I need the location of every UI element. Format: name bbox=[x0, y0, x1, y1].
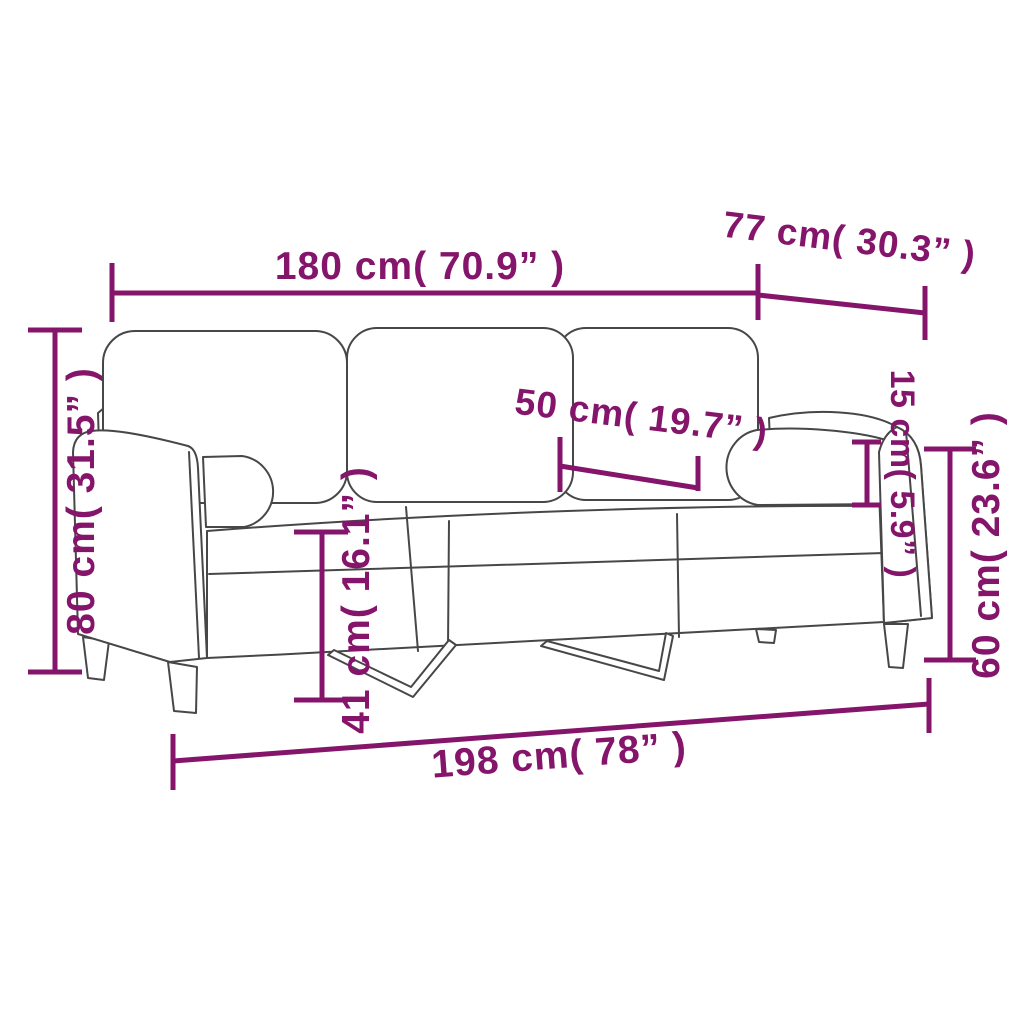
mid-left-leg bbox=[168, 662, 197, 713]
sofa-line-drawing bbox=[73, 328, 932, 713]
dimension-back-height: 80 cm( 31.5” ) bbox=[28, 330, 103, 672]
dimension-inner-width-label: 180 cm( 70.9” ) bbox=[275, 245, 565, 288]
bolster-pillow-left bbox=[203, 456, 273, 527]
dimension-arm-height-label: 60 cm( 23.6” ) bbox=[965, 411, 1008, 679]
seat-gap-left-2 bbox=[448, 521, 449, 648]
dimension-arm-height: 60 cm( 23.6” ) bbox=[924, 411, 1008, 679]
dimension-seat-height-label: 41 cm( 16.1” ) bbox=[335, 466, 378, 734]
product-dimension-diagram: 180 cm( 70.9” ) 77 cm( 30.3” ) 80 cm( 31… bbox=[0, 0, 1024, 1024]
sofa-seat-base bbox=[207, 506, 884, 658]
front-left-leg bbox=[83, 637, 109, 680]
dimension-total-width-label: 198 cm( 78” ) bbox=[430, 725, 688, 787]
dimension-inner-width: 180 cm( 70.9” ) bbox=[112, 245, 758, 322]
dimension-pillow-height-label: 15 cm( 5.9” ) bbox=[883, 370, 921, 579]
dimension-back-height-label: 80 cm( 31.5” ) bbox=[60, 367, 103, 635]
back-right-leg bbox=[756, 629, 776, 643]
sofa-dimension-diagram-svg: 180 cm( 70.9” ) 77 cm( 30.3” ) 80 cm( 31… bbox=[0, 0, 1024, 1024]
dimension-total-width: 198 cm( 78” ) bbox=[173, 678, 929, 790]
front-right-leg bbox=[884, 624, 908, 668]
